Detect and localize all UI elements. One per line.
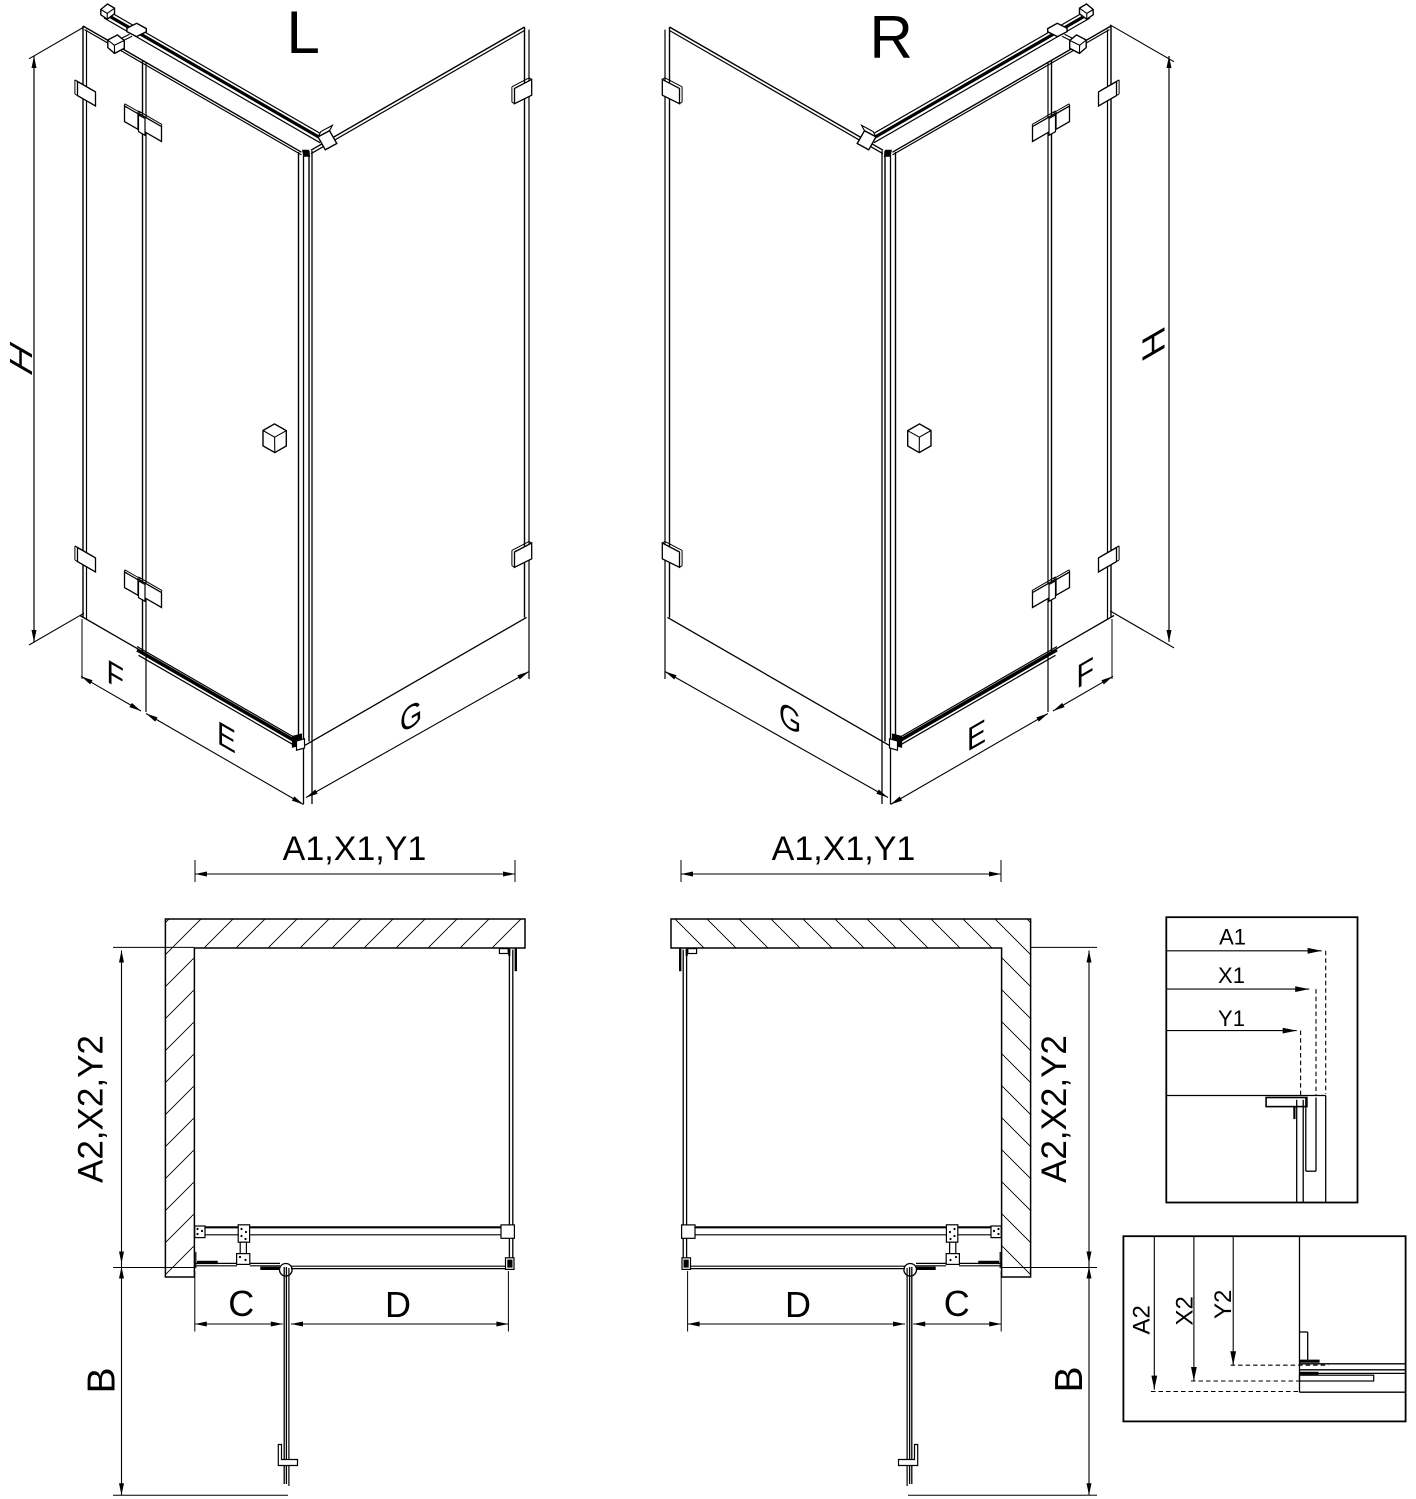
svg-text:R: R [870, 4, 913, 71]
svg-text:A2: A2 [1129, 1305, 1156, 1334]
svg-text:X1: X1 [1218, 963, 1245, 988]
svg-text:A1: A1 [1219, 924, 1246, 949]
svg-text:B: B [81, 1367, 124, 1393]
svg-text:D: D [785, 1284, 811, 1325]
svg-text:C: C [944, 1283, 970, 1324]
svg-text:B: B [1048, 1366, 1091, 1392]
svg-text:C: C [228, 1283, 254, 1324]
svg-text:A2,X2,Y2: A2,X2,Y2 [72, 1035, 111, 1183]
svg-text:A1,X1,Y1: A1,X1,Y1 [772, 830, 916, 868]
svg-text:L: L [287, 0, 320, 66]
svg-text:X2: X2 [1172, 1296, 1199, 1325]
svg-text:A2,X2,Y2: A2,X2,Y2 [1035, 1035, 1074, 1183]
svg-text:A1,X1,Y1: A1,X1,Y1 [283, 830, 427, 868]
svg-text:Y2: Y2 [1210, 1290, 1237, 1319]
svg-text:Y1: Y1 [1218, 1006, 1245, 1031]
svg-text:D: D [385, 1284, 411, 1325]
